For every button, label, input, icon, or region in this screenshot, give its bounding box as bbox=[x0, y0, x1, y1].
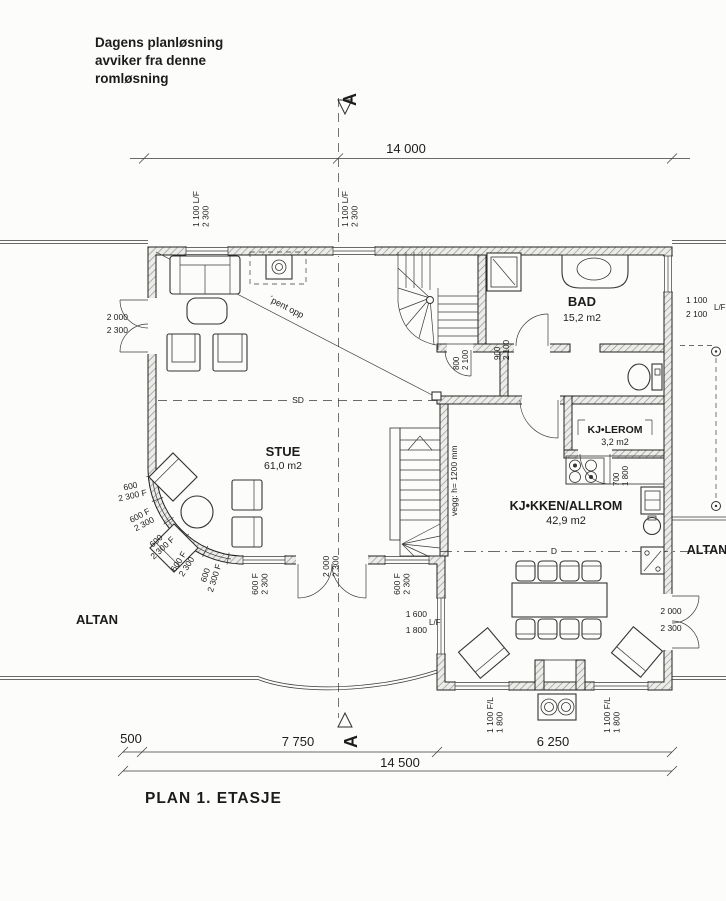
window-stue-s1 bbox=[243, 555, 285, 565]
window-label-top-a: 1 100 L/F2 300 bbox=[191, 191, 211, 227]
fridge bbox=[641, 487, 664, 514]
room-area-kjolerom: 3,2 m2 bbox=[601, 437, 629, 447]
dining-table bbox=[512, 583, 607, 617]
vegg-label: vegg: h= 1200 mm bbox=[449, 445, 459, 516]
door-label-left: 2 000 2 300 bbox=[107, 312, 129, 335]
svg-text:L/F: L/F bbox=[429, 618, 441, 627]
room-label-bad: BAD bbox=[568, 294, 596, 309]
dishwasher bbox=[641, 547, 664, 574]
side-chair bbox=[232, 480, 262, 510]
door-label-stue: 2 0002 300 bbox=[321, 555, 341, 577]
bay-window-label: 6002 300 F bbox=[196, 560, 223, 593]
note-line-3: romløsning bbox=[95, 71, 169, 86]
svg-text:6002 300 F: 6002 300 F bbox=[115, 478, 147, 503]
svg-text:7001 800: 7001 800 bbox=[612, 465, 630, 486]
stairs-up-arrow bbox=[408, 436, 432, 450]
door-bad bbox=[516, 314, 548, 346]
chimney bbox=[250, 252, 306, 284]
door-label-bad: 9002 100 bbox=[493, 339, 511, 360]
section-triangle-bottom bbox=[338, 713, 352, 727]
room-area-bad: 15,2 m2 bbox=[563, 312, 601, 324]
dining-chairs-top bbox=[516, 561, 601, 581]
window-right bbox=[663, 256, 673, 292]
dim-top: 14 000 bbox=[386, 141, 426, 156]
section-letter-top: A bbox=[340, 93, 360, 106]
svg-text:1 800: 1 800 bbox=[406, 625, 428, 635]
door-altan-right-double bbox=[672, 596, 699, 648]
pent-opp-label: ´pent opp bbox=[267, 294, 305, 320]
svg-text:2 100: 2 100 bbox=[686, 309, 708, 319]
side-chair bbox=[232, 517, 262, 547]
stairs-upper bbox=[398, 252, 478, 350]
svg-text:6002 300 F: 6002 300 F bbox=[196, 560, 223, 593]
bay-window-label: 600 F2 300 bbox=[250, 573, 270, 595]
window-top-a bbox=[186, 246, 228, 256]
note-line-2: avviker fra denne bbox=[95, 53, 207, 68]
note-line-1: Dagens planløsning bbox=[95, 35, 223, 50]
room-label-altan-right: ALTAN bbox=[687, 543, 726, 557]
dining-chairs-bottom bbox=[516, 619, 601, 639]
svg-text:2 000: 2 000 bbox=[107, 312, 129, 322]
window-label-kitchen-s1: 1 100 F/L1 800 bbox=[485, 697, 505, 733]
window-label-kitchen-s2: 1 100 F/L1 800 bbox=[602, 697, 622, 733]
svg-text:1 100 F/L1 800: 1 100 F/L1 800 bbox=[602, 697, 622, 733]
sofa bbox=[170, 256, 240, 294]
plan-title: PLAN 1. ETASJE bbox=[145, 790, 282, 807]
room-area-stue: 61,0 m2 bbox=[264, 460, 302, 472]
toilet bbox=[628, 364, 662, 390]
svg-text:1 100 L/F2 300: 1 100 L/F2 300 bbox=[191, 191, 211, 227]
bay-window-label: 600 F2 300 bbox=[128, 506, 156, 533]
room-label-altan-left: ALTAN bbox=[76, 612, 118, 627]
altan-right-railing bbox=[680, 346, 721, 511]
wall-kjolerom-top bbox=[572, 396, 664, 404]
window-top-b bbox=[333, 246, 375, 256]
svg-text:600 F2 300: 600 F2 300 bbox=[250, 573, 270, 595]
coffee-table bbox=[187, 298, 227, 324]
floor-plan-canvas: Dagens planløsning avviker fra denne rom… bbox=[0, 0, 726, 901]
svg-text:2 300: 2 300 bbox=[107, 325, 129, 335]
section-letter-bottom: A bbox=[341, 735, 361, 748]
svg-text:600 F2 300: 600 F2 300 bbox=[392, 573, 412, 595]
svg-text:1 100 F/L1 800: 1 100 F/L1 800 bbox=[485, 697, 505, 733]
room-area-kjokken: 42,9 m2 bbox=[546, 515, 586, 527]
svg-text:9002 100: 9002 100 bbox=[493, 339, 511, 360]
sd-label: SD bbox=[292, 395, 304, 405]
window-kitchen-s1 bbox=[455, 681, 509, 691]
svg-text:2 300: 2 300 bbox=[660, 623, 682, 633]
armchair bbox=[167, 334, 200, 371]
wall-stair-bad bbox=[478, 255, 486, 352]
room-label-kjolerom: KJ•LEROM bbox=[587, 424, 642, 436]
svg-text:1 600: 1 600 bbox=[406, 609, 428, 619]
svg-text:L/F: L/F bbox=[714, 303, 726, 312]
bay-window-label: 6002 300 F bbox=[115, 478, 147, 503]
wall-kjolerom-left bbox=[564, 396, 572, 458]
labels: Dagens planløsning avviker fra denne rom… bbox=[76, 35, 726, 807]
window-label-kitchen-left: 1 600 1 800 L/F bbox=[406, 609, 441, 635]
svg-text:2 0002 300: 2 0002 300 bbox=[321, 555, 341, 577]
lounge-chair bbox=[612, 627, 663, 677]
window-stue-s2 bbox=[385, 555, 429, 565]
dim-500: 500 bbox=[120, 731, 142, 746]
bathtub bbox=[562, 255, 628, 288]
floor-plan-page: Dagens planløsning avviker fra denne rom… bbox=[0, 0, 726, 901]
dim-total: 14 500 bbox=[380, 755, 420, 770]
svg-text:2 000: 2 000 bbox=[660, 606, 682, 616]
door-hall-kitchen bbox=[520, 400, 558, 438]
armchair bbox=[213, 334, 247, 371]
svg-text:600 F2 300: 600 F2 300 bbox=[128, 506, 156, 533]
window-label-right: 1 100 2 100 L/F bbox=[686, 295, 726, 319]
svg-text:1 100: 1 100 bbox=[686, 295, 708, 305]
dim-7750: 7 750 bbox=[282, 734, 315, 749]
window-kitchen-s2 bbox=[594, 681, 648, 691]
svg-text:1 100 L/F2 300: 1 100 L/F2 300 bbox=[340, 191, 360, 227]
room-label-stue: STUE bbox=[266, 444, 301, 459]
door-label-kjolerom: 7001 800 bbox=[612, 465, 630, 486]
shower bbox=[487, 253, 521, 291]
dining-set bbox=[459, 561, 663, 678]
bay-window-label: 600 F2 300 bbox=[392, 573, 412, 595]
window-label-top-b: 1 100 L/F2 300 bbox=[340, 191, 360, 227]
d-label: D bbox=[551, 546, 557, 556]
wall-wc bbox=[600, 344, 664, 352]
round-table bbox=[181, 496, 213, 528]
room-label-kjokken: KJ•KKEN/ALLROM bbox=[510, 499, 623, 513]
dim-6250: 6 250 bbox=[537, 734, 570, 749]
wall-stue-kitchen bbox=[440, 404, 448, 556]
lounge-chair bbox=[459, 628, 510, 678]
stairs-mid bbox=[390, 428, 440, 556]
sink bbox=[644, 516, 661, 535]
